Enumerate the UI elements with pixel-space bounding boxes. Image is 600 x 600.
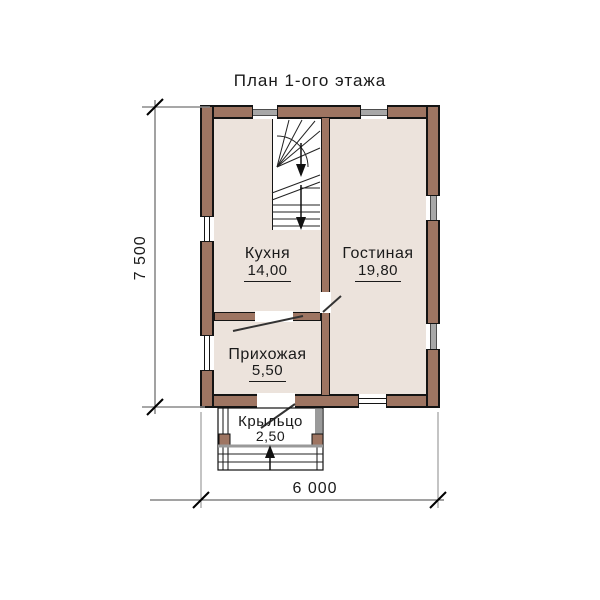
room-label-kitchen: Кухня xyxy=(214,245,321,263)
dimension-value-width: 6 000 xyxy=(270,480,360,498)
stairs-symbol xyxy=(272,120,320,226)
plan-title: План 1-ого этажа xyxy=(190,72,430,91)
dimension-value-height: 7 500 xyxy=(132,228,150,288)
entry-up-arrow xyxy=(265,445,275,470)
dimension-height xyxy=(142,99,210,415)
stair-down-arrow xyxy=(296,143,306,230)
door-leaf-kitchen-living xyxy=(323,296,341,312)
room-area-hallway: 5,50 xyxy=(214,363,321,382)
room-area-porch: 2,50 xyxy=(218,429,323,444)
floor-plan-canvas: План 1-ого этажа xyxy=(0,0,600,600)
room-area-kitchen: 14,00 xyxy=(214,263,321,282)
room-area-living: 19,80 xyxy=(330,263,426,282)
door-leaf-hallway-kitchen xyxy=(233,316,303,331)
room-label-living: Гостиная xyxy=(330,245,426,263)
room-label-hallway: Прихожая xyxy=(214,346,321,364)
